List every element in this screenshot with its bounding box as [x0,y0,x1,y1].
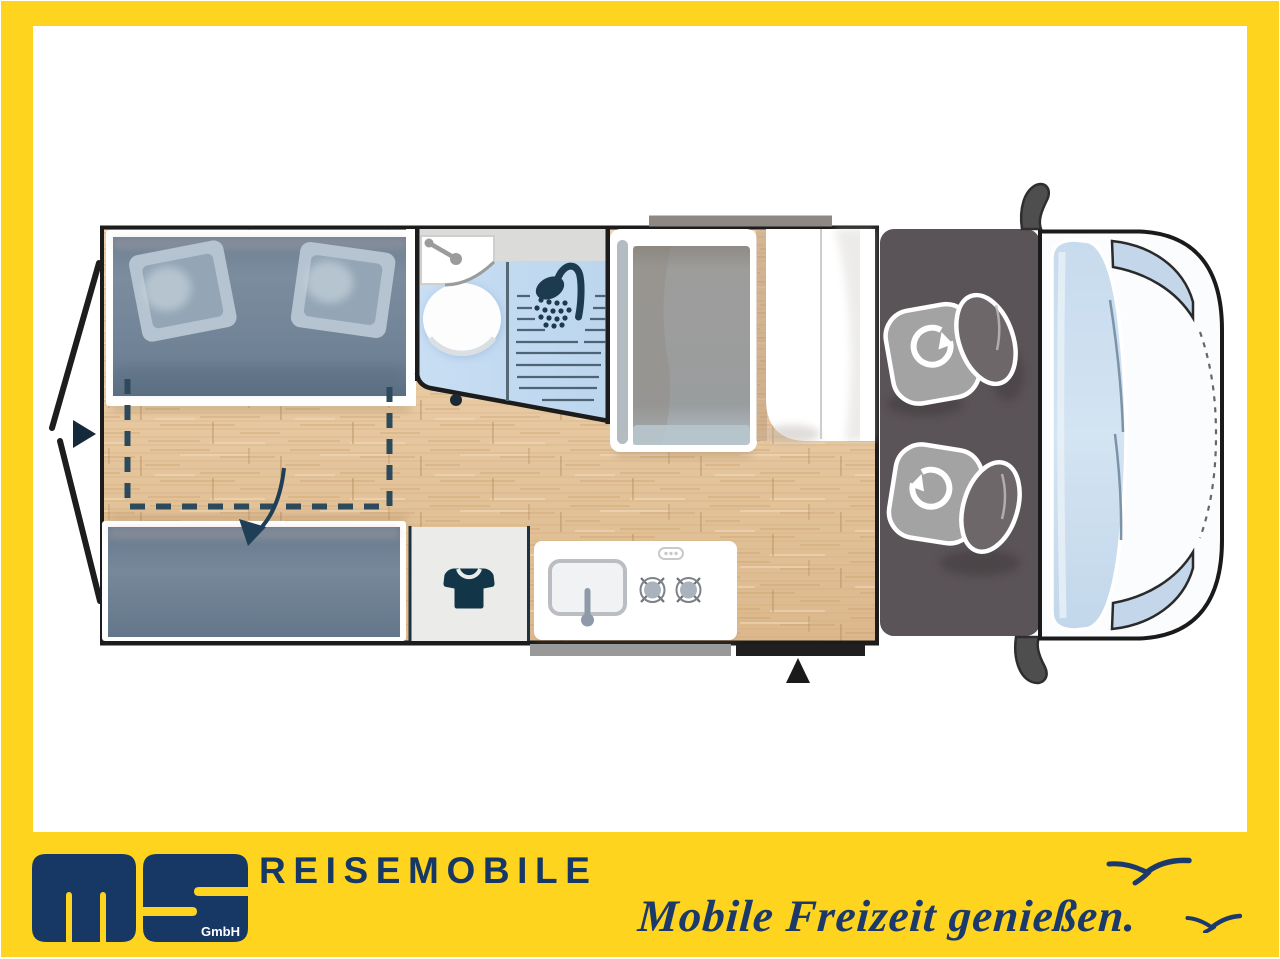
svg-text:GmbH: GmbH [201,924,240,939]
